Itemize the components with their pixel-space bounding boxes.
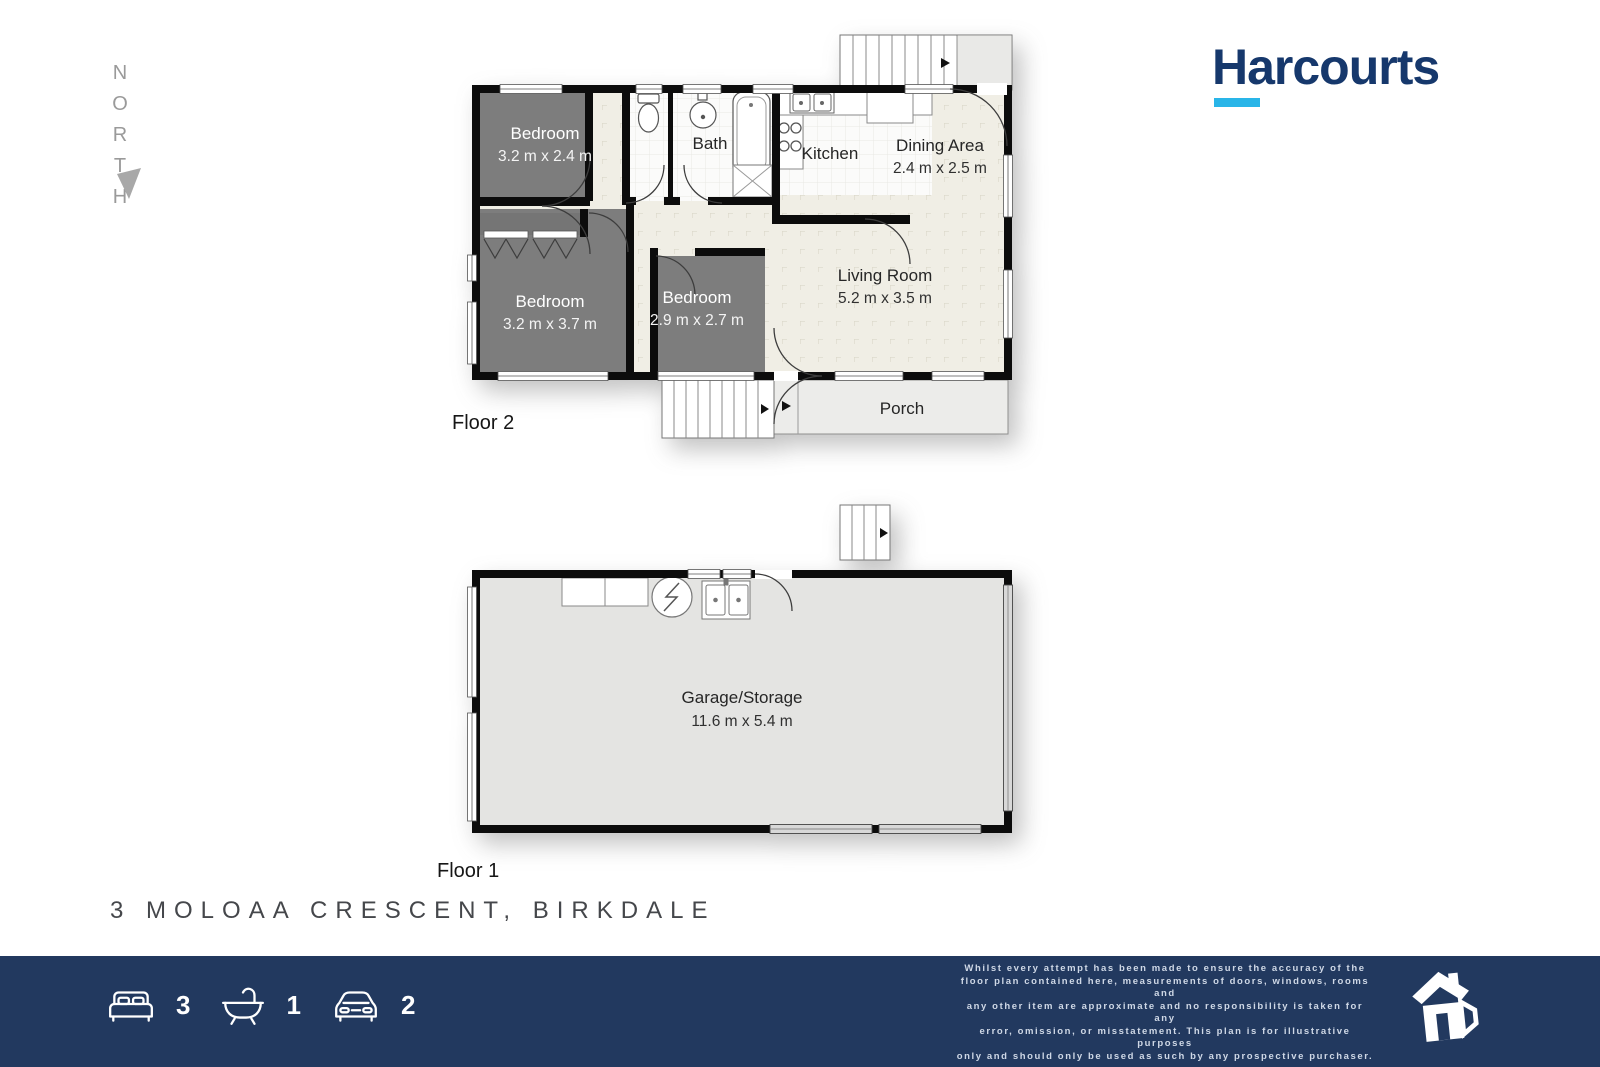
porch-door-gap	[774, 371, 798, 381]
floor2-label: Floor 2	[452, 412, 514, 435]
room-dims: 5.2 m x 3.5 m	[838, 290, 932, 307]
footer-bar: 3 1 2 Whilst every attempt has been made…	[0, 956, 1600, 1067]
garage-stairs	[840, 505, 890, 560]
room-label: Porch	[880, 399, 924, 418]
property-address: 3 MOLOAA CRESCENT, BIRKDALE	[110, 897, 715, 925]
car-count: 2	[401, 990, 415, 1021]
room-dims: 2.4 m x 2.5 m	[893, 160, 987, 177]
stove-icon	[776, 115, 803, 169]
room-label: Bedroom	[663, 288, 732, 307]
room-label: Bath	[693, 134, 728, 153]
bathtub-icon	[733, 92, 770, 177]
bath-count: 1	[286, 990, 300, 1021]
room-label: Kitchen	[802, 144, 859, 163]
room-dims: 2.9 m x 2.7 m	[650, 312, 744, 329]
brand-underline	[1214, 98, 1260, 107]
property-stats: 3 1 2	[106, 984, 425, 1026]
floor1-plan: Garage/Storage 11.6 m x 5.4 m	[440, 485, 1040, 845]
room-label: Bedroom	[516, 292, 585, 311]
room-dims: 3.2 m x 3.7 m	[503, 316, 597, 333]
floor2-plan: Bedroom 3.2 m x 2.4 m Bath Kitchen Dinin…	[440, 15, 1040, 445]
room-dims: 11.6 m x 5.4 m	[691, 713, 792, 730]
room-label: Bedroom	[511, 124, 580, 143]
toilet-icon	[638, 94, 659, 132]
garage-bench	[562, 578, 648, 606]
room-dims: 3.2 m x 2.4 m	[498, 148, 592, 165]
room-label: Living Room	[838, 266, 933, 285]
house-icon	[1395, 964, 1490, 1059]
bath-icon	[220, 984, 266, 1026]
bedroom-top-left	[476, 89, 589, 201]
car-icon	[331, 986, 381, 1024]
brand-logo: Harcourts	[1212, 42, 1439, 92]
kitchen-sink-icon	[790, 92, 834, 113]
hot-water-icon	[652, 577, 692, 617]
brand-name: Harcourts	[1212, 42, 1439, 92]
bed-icon	[106, 985, 156, 1025]
north-arrow-icon	[116, 168, 146, 202]
bed-count: 3	[176, 990, 190, 1021]
shower-icon	[733, 165, 772, 197]
disclaimer-text: Whilst every attempt has been made to en…	[955, 963, 1375, 1063]
floor1-label: Floor 1	[437, 860, 499, 883]
entry-stairs	[840, 35, 1012, 90]
laundry-tub-icon	[702, 577, 750, 619]
entry-door-gap	[977, 83, 1007, 95]
room-label: Dining Area	[896, 136, 984, 155]
room-label: Garage/Storage	[682, 688, 803, 707]
porch-stairs	[662, 380, 774, 438]
